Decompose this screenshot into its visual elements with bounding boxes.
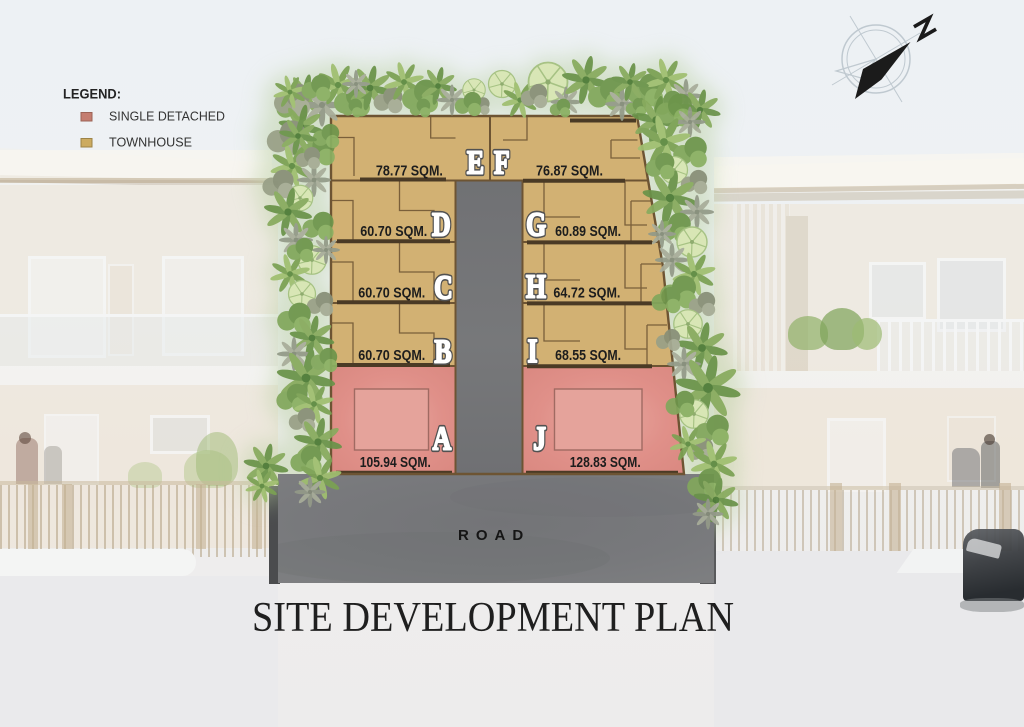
- svg-text:60.70 SQM.: 60.70 SQM.: [358, 348, 425, 364]
- svg-text:SITE DEVELOPMENT PLAN: SITE DEVELOPMENT PLAN: [252, 595, 734, 641]
- svg-text:A: A: [433, 419, 452, 457]
- svg-text:60.70 SQM.: 60.70 SQM.: [358, 286, 425, 302]
- svg-text:60.70 SQM.: 60.70 SQM.: [360, 224, 427, 240]
- svg-text:SINGLE DETACHED: SINGLE DETACHED: [109, 110, 225, 124]
- svg-text:C: C: [434, 268, 453, 306]
- svg-text:ROAD: ROAD: [458, 527, 530, 544]
- svg-text:LEGEND:: LEGEND:: [63, 86, 121, 102]
- svg-text:76.87 SQM.: 76.87 SQM.: [536, 164, 603, 180]
- svg-text:105.94 SQM.: 105.94 SQM.: [360, 455, 431, 471]
- svg-text:G: G: [526, 205, 546, 243]
- svg-text:64.72 SQM.: 64.72 SQM.: [553, 286, 620, 302]
- svg-text:I: I: [527, 332, 537, 370]
- svg-text:H: H: [526, 267, 546, 305]
- svg-text:128.83 SQM.: 128.83 SQM.: [570, 455, 641, 471]
- svg-text:J: J: [533, 419, 546, 457]
- svg-text:F: F: [494, 143, 510, 181]
- svg-text:68.55 SQM.: 68.55 SQM.: [555, 348, 621, 364]
- svg-text:TOWNHOUSE: TOWNHOUSE: [109, 136, 192, 150]
- svg-text:B: B: [434, 332, 451, 370]
- svg-text:E: E: [467, 143, 484, 181]
- svg-text:D: D: [432, 205, 451, 243]
- svg-text:78.77 SQM.: 78.77 SQM.: [376, 164, 443, 180]
- svg-text:60.89 SQM.: 60.89 SQM.: [555, 224, 621, 240]
